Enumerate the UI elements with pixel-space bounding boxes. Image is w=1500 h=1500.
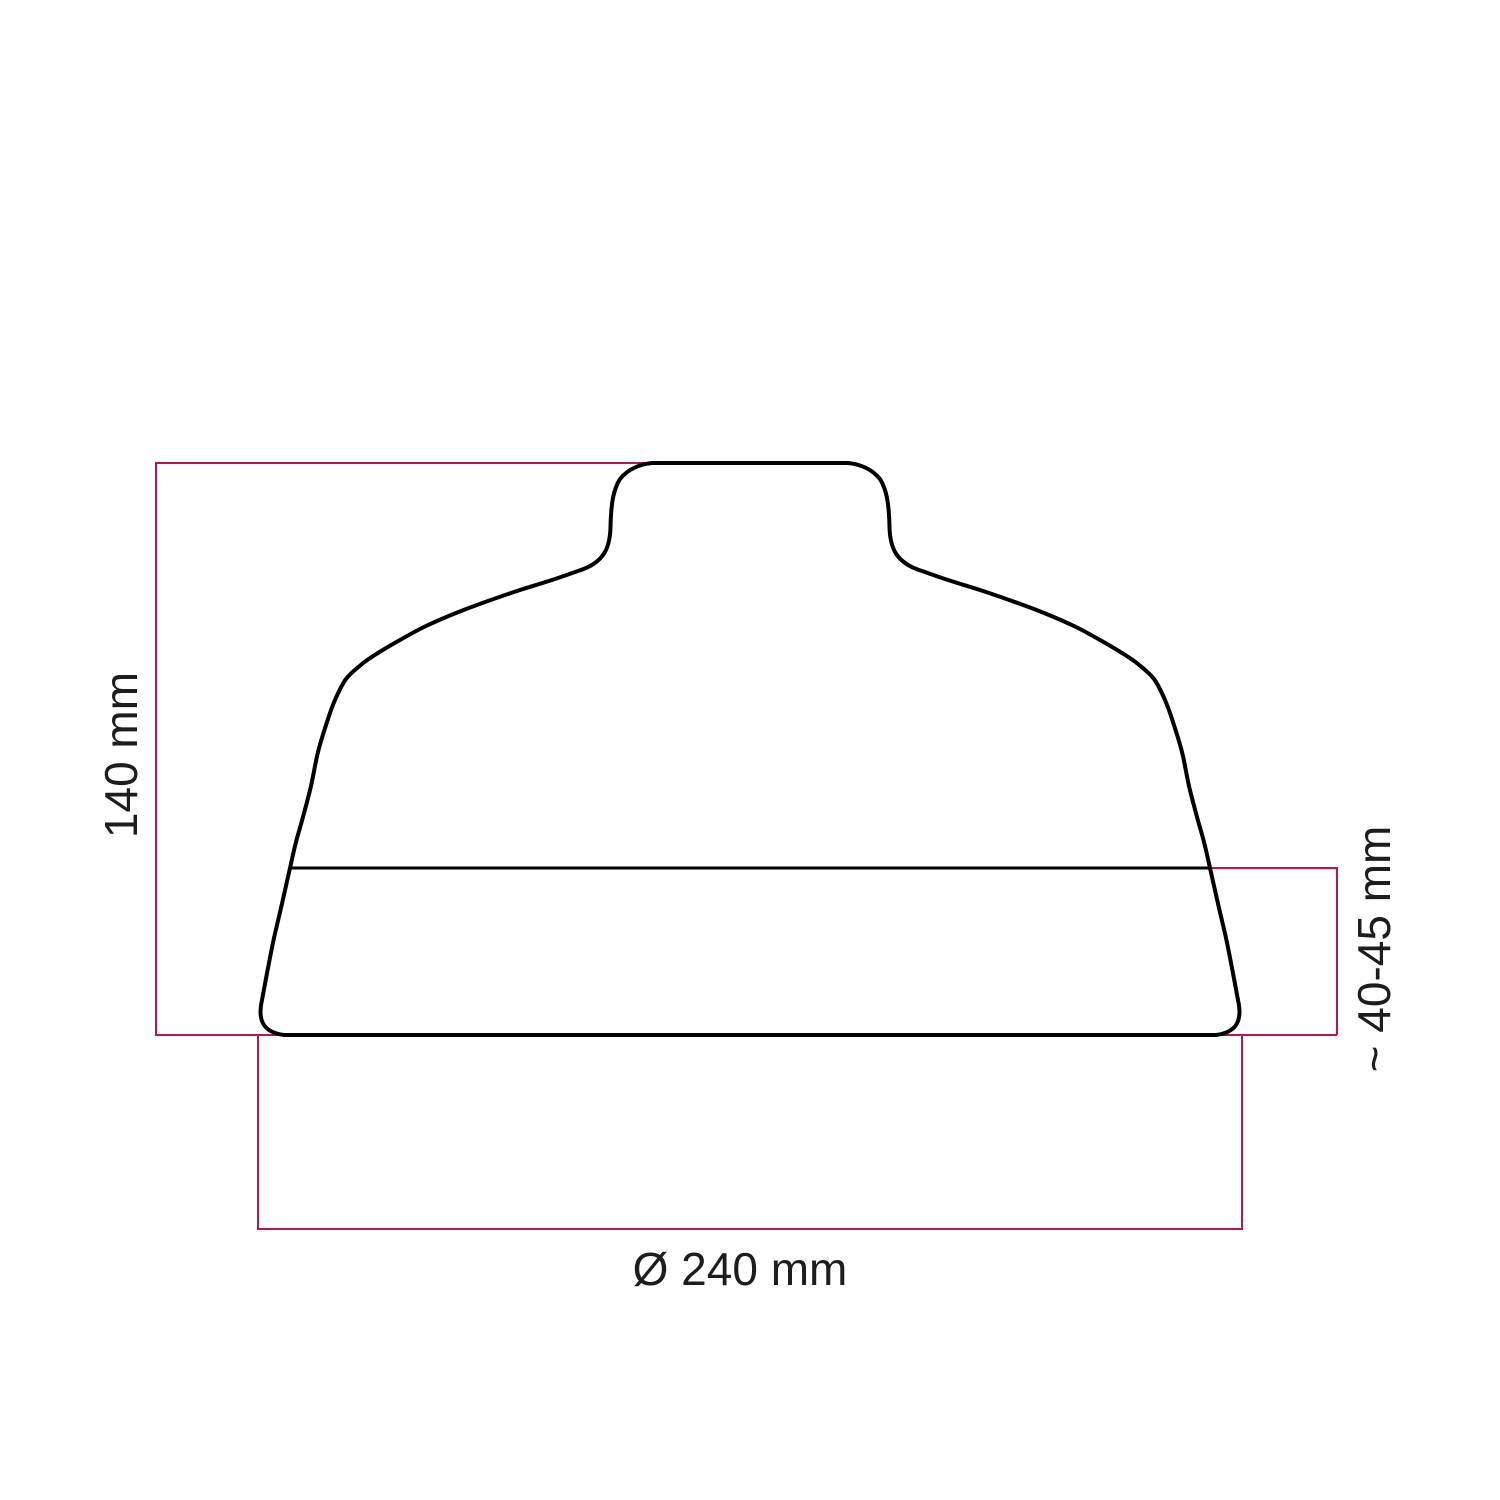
svg-text:140 mm: 140 mm [95, 672, 147, 838]
svg-text:Ø 240 mm: Ø 240 mm [633, 1243, 848, 1295]
svg-text:~ 40-45 mm: ~ 40-45 mm [1348, 826, 1400, 1073]
